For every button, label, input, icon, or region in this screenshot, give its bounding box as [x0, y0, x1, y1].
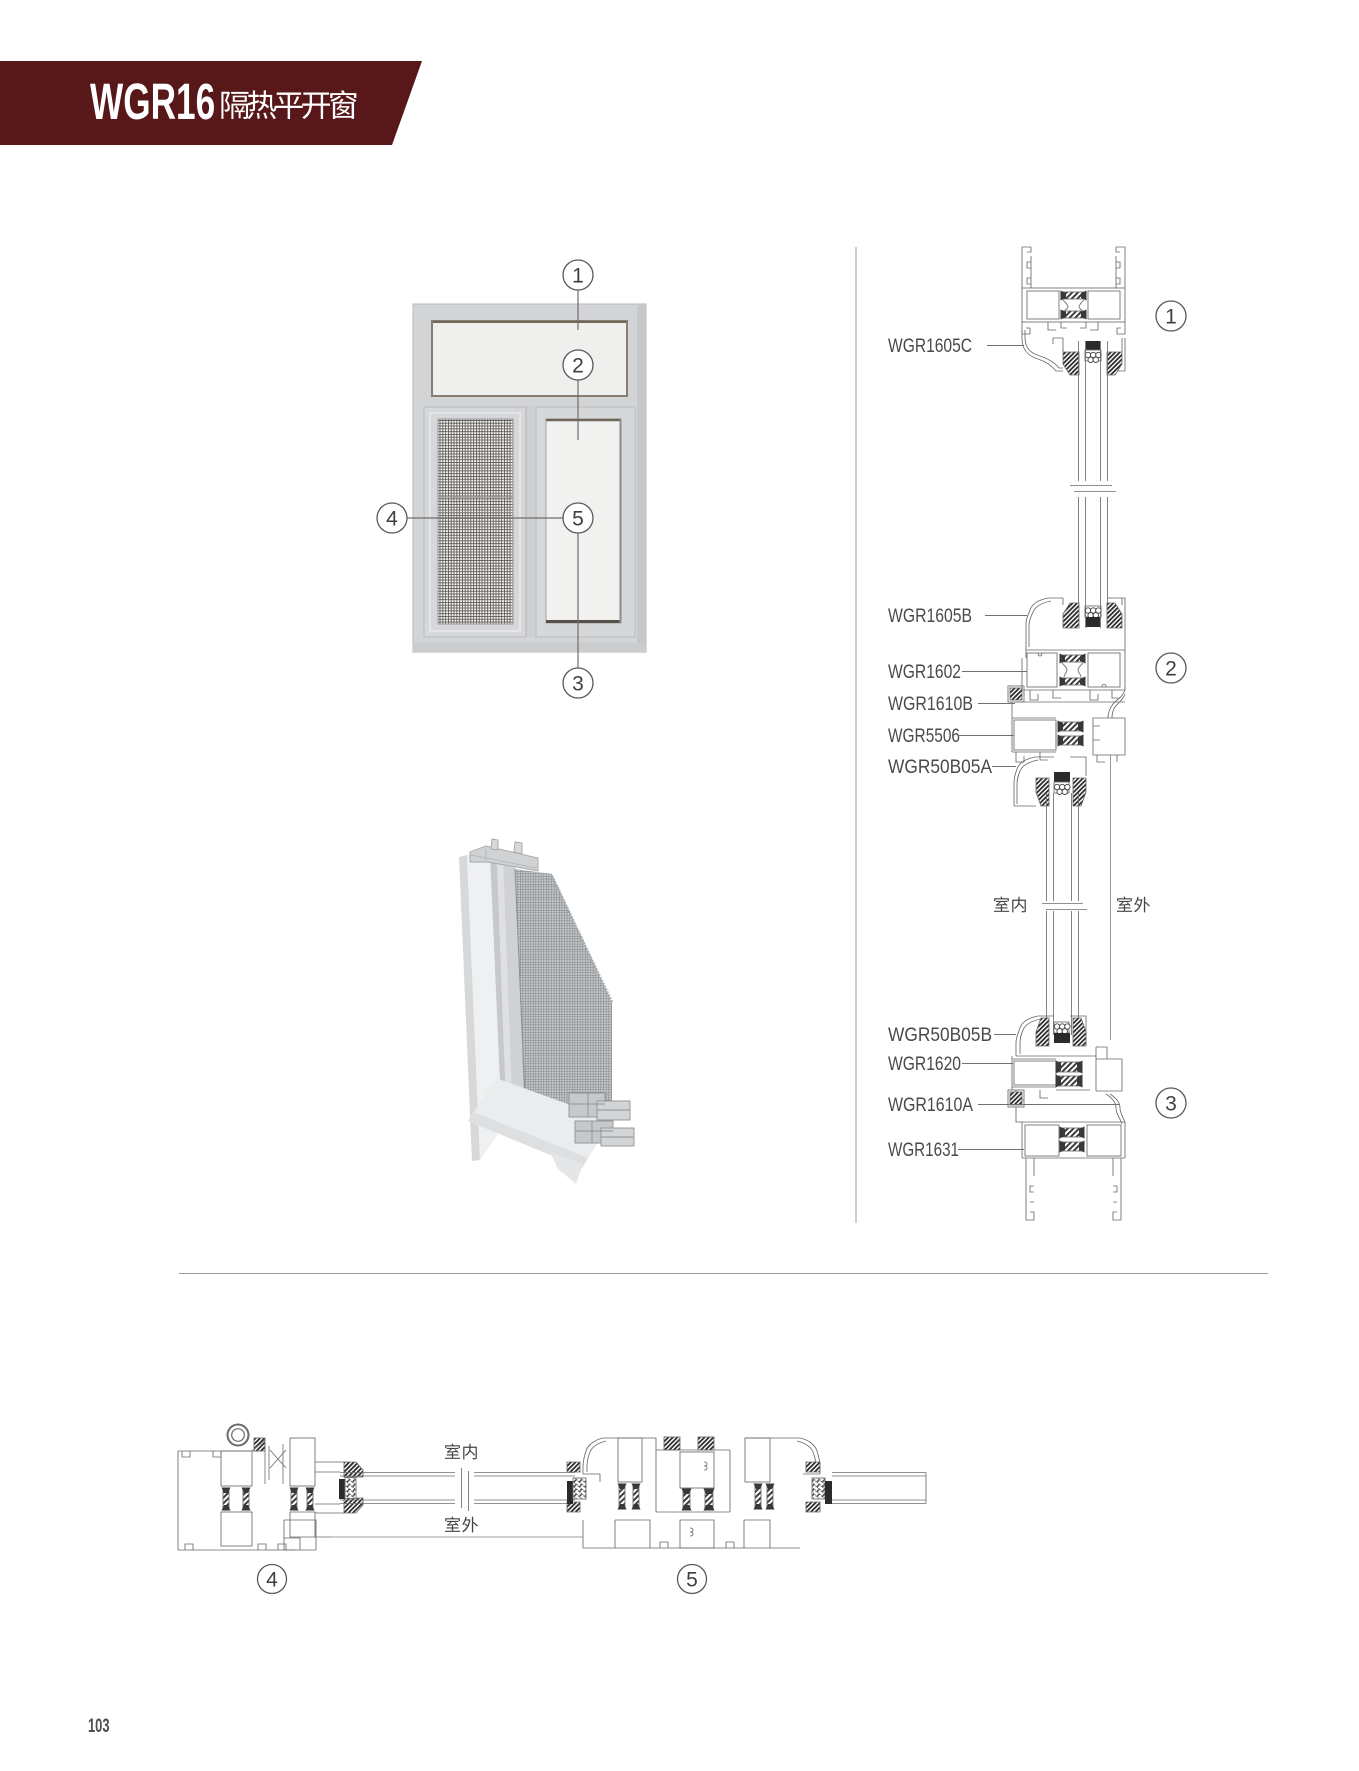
svg-text:3: 3	[1165, 1093, 1177, 1116]
svg-text:4: 4	[386, 508, 398, 531]
svg-text:WGR1620: WGR1620	[888, 1054, 961, 1075]
svg-text:WGR1610A: WGR1610A	[888, 1095, 973, 1116]
svg-text:2: 2	[572, 355, 584, 378]
svg-text:5: 5	[572, 508, 584, 531]
svg-text:5: 5	[686, 1569, 698, 1592]
svg-text:4: 4	[266, 1569, 278, 1592]
svg-text:3: 3	[572, 673, 584, 696]
svg-text:WGR1631: WGR1631	[888, 1140, 959, 1161]
svg-text:WGR50B05A: WGR50B05A	[888, 757, 992, 778]
svg-text:WGR1602: WGR1602	[888, 662, 961, 683]
svg-text:1: 1	[1165, 306, 1177, 329]
svg-text:WGR1605B: WGR1605B	[888, 606, 972, 627]
svg-text:WGR50B05B: WGR50B05B	[888, 1025, 992, 1046]
svg-text:2: 2	[1165, 658, 1177, 681]
svg-text:1: 1	[572, 265, 584, 288]
svg-text:WGR5506: WGR5506	[888, 726, 960, 747]
svg-text:WGR1610B: WGR1610B	[888, 694, 973, 715]
svg-text:WGR1605C: WGR1605C	[888, 336, 972, 357]
